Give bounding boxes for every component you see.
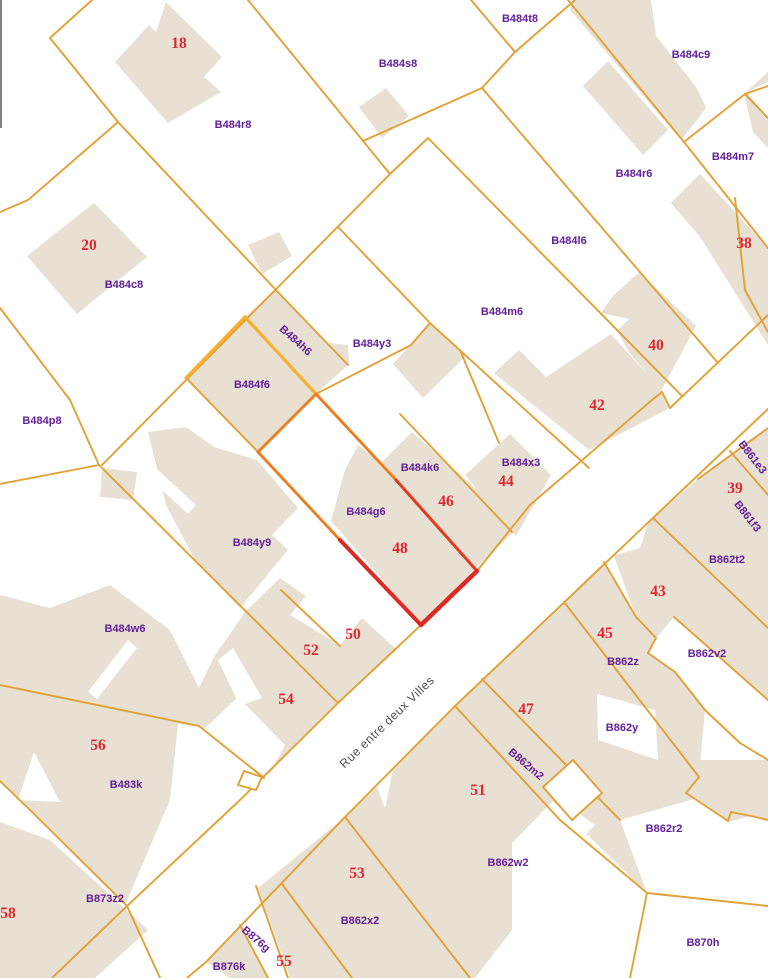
svg-text:B483k: B483k (110, 779, 143, 791)
svg-text:46: 46 (438, 493, 454, 510)
svg-text:B484w6: B484w6 (105, 623, 146, 635)
svg-text:53: 53 (349, 865, 365, 882)
svg-text:55: 55 (276, 953, 292, 970)
svg-text:40: 40 (648, 337, 664, 354)
svg-text:B484c8: B484c8 (105, 279, 144, 291)
svg-text:47: 47 (518, 701, 534, 718)
svg-text:44: 44 (498, 473, 514, 490)
svg-text:B484m6: B484m6 (481, 306, 523, 318)
svg-text:43: 43 (650, 583, 666, 600)
svg-text:B862y: B862y (606, 722, 639, 734)
svg-text:B484p8: B484p8 (22, 415, 61, 427)
svg-text:B862v2: B862v2 (688, 648, 727, 660)
svg-text:B862w2: B862w2 (488, 857, 529, 869)
svg-text:50: 50 (345, 626, 361, 643)
svg-text:B484r6: B484r6 (616, 168, 653, 180)
svg-text:B484f6: B484f6 (234, 379, 270, 391)
svg-text:B862x2: B862x2 (341, 915, 380, 927)
svg-text:42: 42 (589, 397, 605, 414)
svg-text:48: 48 (392, 540, 408, 557)
svg-text:B484k6: B484k6 (401, 462, 440, 474)
svg-text:B484r8: B484r8 (215, 119, 252, 131)
svg-text:51: 51 (470, 782, 486, 799)
svg-text:B876k: B876k (213, 961, 246, 973)
svg-text:38: 38 (736, 235, 752, 252)
svg-text:B484g6: B484g6 (346, 506, 385, 518)
svg-text:B870h: B870h (686, 937, 719, 949)
svg-text:18: 18 (171, 35, 187, 52)
svg-text:B484c9: B484c9 (672, 49, 711, 61)
svg-text:B484m7: B484m7 (712, 151, 754, 163)
svg-text:B484t8: B484t8 (502, 13, 538, 25)
svg-text:58: 58 (0, 905, 16, 922)
svg-text:B862t2: B862t2 (709, 554, 745, 566)
svg-text:B484l6: B484l6 (551, 235, 586, 247)
svg-text:39: 39 (727, 480, 743, 497)
svg-text:B862z: B862z (607, 656, 639, 668)
svg-text:45: 45 (597, 625, 613, 642)
svg-text:20: 20 (81, 237, 97, 254)
svg-text:B484y9: B484y9 (233, 537, 272, 549)
svg-text:B873z2: B873z2 (86, 893, 124, 905)
svg-text:B484x3: B484x3 (502, 457, 541, 469)
svg-text:52: 52 (303, 642, 319, 659)
svg-text:B862r2: B862r2 (646, 823, 683, 835)
svg-text:54: 54 (278, 691, 294, 708)
svg-text:B484y3: B484y3 (353, 338, 392, 350)
svg-text:B484s8: B484s8 (379, 58, 418, 70)
svg-text:56: 56 (90, 737, 106, 754)
